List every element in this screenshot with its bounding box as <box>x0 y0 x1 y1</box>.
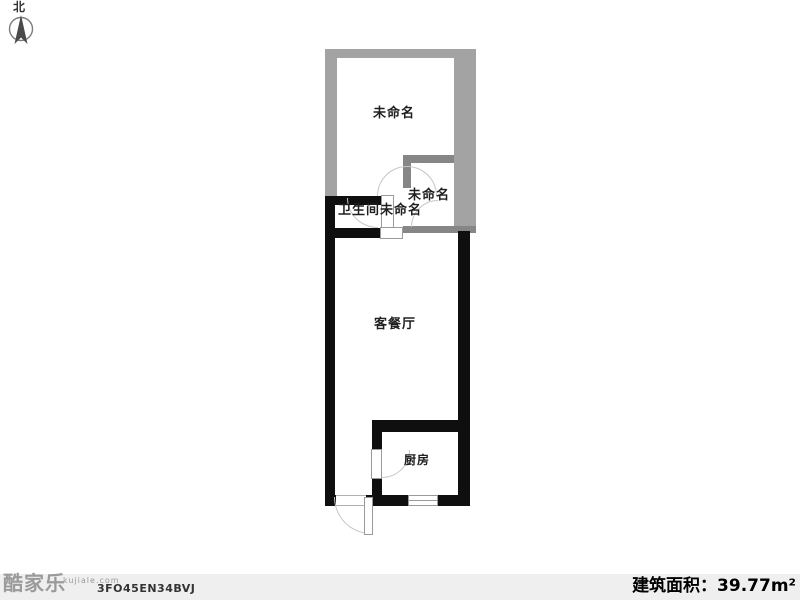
building-area: 建筑面积：39.77m² <box>632 576 796 596</box>
entrance-door-panel <box>364 497 373 535</box>
kitchen-door-panel <box>371 449 382 479</box>
north-compass: 北 <box>0 0 44 48</box>
brand-logo: 酷家乐 <box>3 571 66 595</box>
wall <box>454 49 476 231</box>
room-label-unnamed-small: 未命名 <box>408 189 450 202</box>
entrance-doorway <box>336 495 366 506</box>
footer-bar: 酷家乐 kujiale.com 3FO45EN34BVJ 建筑面积：39.77m… <box>0 574 800 600</box>
floor-plan-canvas: 北 未命名 未命名 卫生间 未命名 客餐厅 厨房 <box>0 0 800 600</box>
wall <box>458 231 470 506</box>
wall <box>335 228 380 238</box>
wall <box>325 196 335 506</box>
north-compass-icon <box>0 12 44 48</box>
wall <box>372 478 382 506</box>
room-label-passage: 未命名 <box>380 204 422 217</box>
window-mullion <box>409 500 437 501</box>
plan-code: 3FO45EN34BVJ <box>97 583 195 594</box>
wall <box>325 49 337 197</box>
room-label-kitchen: 厨房 <box>404 454 430 466</box>
wall <box>372 420 470 432</box>
room-label-living-dining: 客餐厅 <box>374 318 416 331</box>
door-threshold <box>380 227 403 239</box>
room-label-unnamed-top: 未命名 <box>373 107 415 120</box>
wall <box>325 49 475 58</box>
wall <box>372 420 382 450</box>
room-label-bathroom: 卫生间 <box>338 204 380 217</box>
